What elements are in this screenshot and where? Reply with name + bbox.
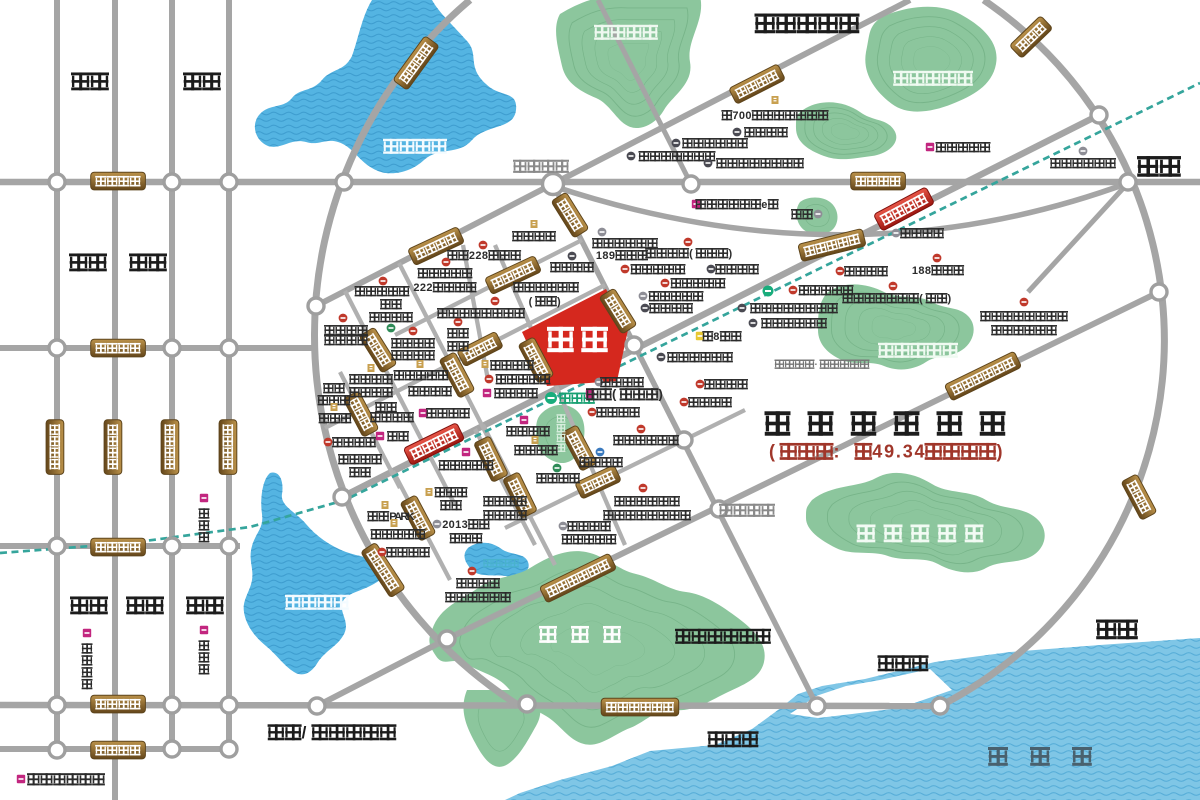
svg-text:(: ( xyxy=(769,442,775,462)
svg-text:49.34: 49.34 xyxy=(872,442,924,462)
svg-text:189: 189 xyxy=(596,250,615,262)
svg-text:·: · xyxy=(815,360,818,371)
svg-text:): ) xyxy=(997,442,1003,462)
svg-text:700: 700 xyxy=(732,110,751,122)
svg-text:(: ( xyxy=(919,293,923,305)
svg-text:e: e xyxy=(761,199,767,211)
svg-text:): ) xyxy=(659,387,663,402)
svg-text:(: ( xyxy=(529,296,533,308)
svg-text:2013: 2013 xyxy=(442,519,468,531)
svg-text:): ) xyxy=(729,248,733,260)
svg-text:/: / xyxy=(302,723,307,742)
svg-text:(: ( xyxy=(689,248,693,260)
svg-text::: : xyxy=(834,442,840,462)
svg-text:228: 228 xyxy=(469,250,488,262)
svg-text:): ) xyxy=(948,293,952,305)
svg-text:): ) xyxy=(557,296,561,308)
svg-text:(: ( xyxy=(612,387,617,402)
svg-text:8: 8 xyxy=(713,331,719,343)
svg-text:188: 188 xyxy=(912,265,931,277)
svg-text:222: 222 xyxy=(413,282,432,294)
